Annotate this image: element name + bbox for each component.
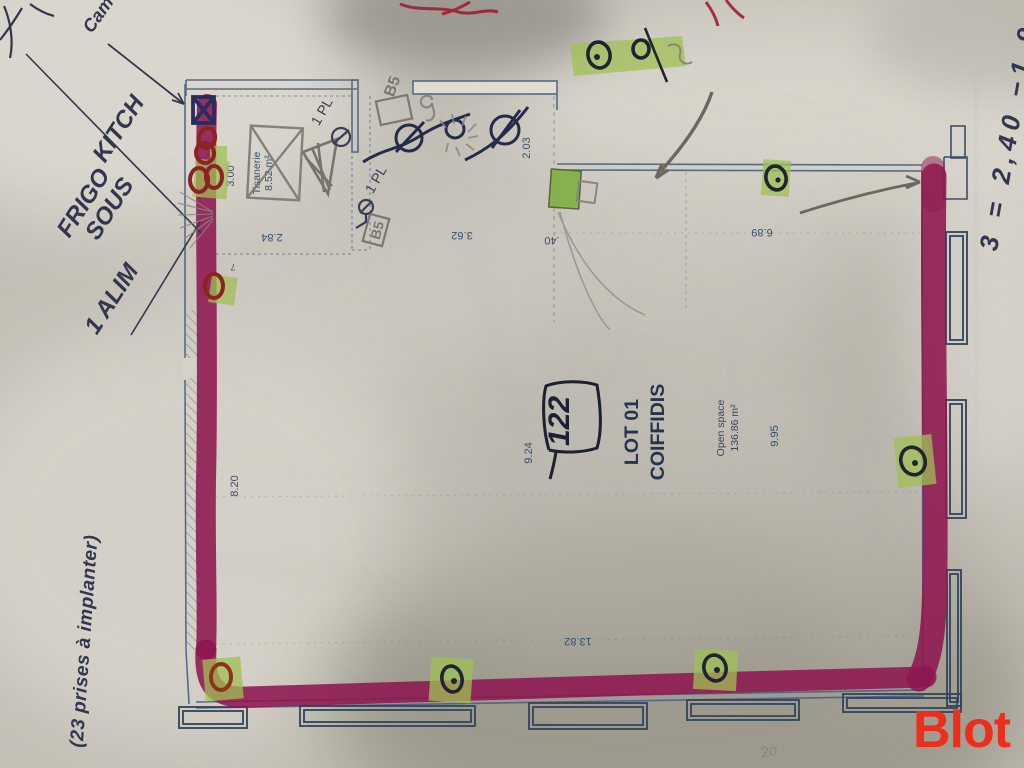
svg-text:13.82: 13.82 (564, 635, 592, 647)
svg-text:.40: .40 (544, 234, 559, 246)
svg-text:122: 122 (543, 396, 576, 446)
svg-text:2.03: 2.03 (521, 137, 533, 158)
svg-text:3.62: 3.62 (451, 229, 472, 241)
svg-text:7: 7 (230, 262, 235, 272)
svg-text:2.84: 2.84 (261, 231, 282, 243)
svg-text:Blot: Blot (913, 701, 1011, 759)
svg-text:8.20: 8.20 (229, 475, 241, 496)
svg-text:9.24: 9.24 (523, 442, 535, 463)
svg-text:COIFFIDIS: COIFFIDIS (647, 384, 669, 480)
svg-text:Open space: Open space (715, 400, 727, 457)
svg-text:6.89: 6.89 (751, 226, 772, 238)
svg-text:136.86 m²: 136.86 m² (729, 404, 741, 452)
svg-text:9.95: 9.95 (769, 425, 781, 446)
svg-text:LOT 01: LOT 01 (621, 399, 643, 465)
svg-text:Tisanerie: Tisanerie (251, 151, 263, 194)
